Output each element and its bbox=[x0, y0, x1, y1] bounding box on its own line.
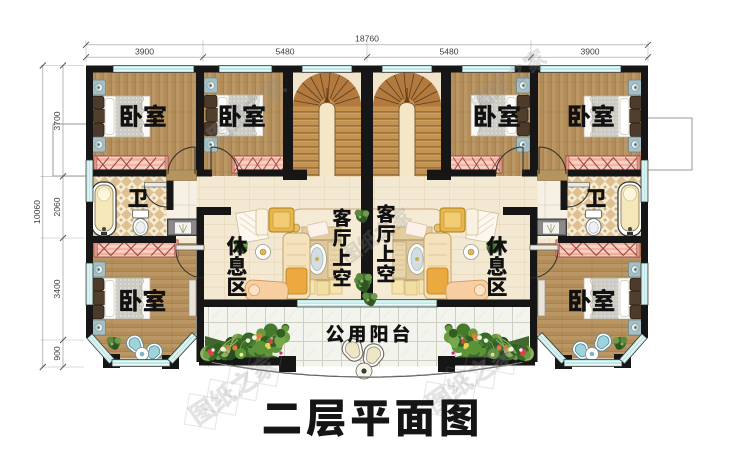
svg-text:900: 900 bbox=[52, 346, 62, 361]
svg-text:3400: 3400 bbox=[52, 279, 62, 298]
svg-text:18760: 18760 bbox=[355, 34, 379, 44]
svg-text:2060: 2060 bbox=[52, 197, 62, 216]
svg-text:3900: 3900 bbox=[135, 47, 154, 57]
svg-text:5480: 5480 bbox=[275, 47, 294, 57]
svg-text:3900: 3900 bbox=[580, 47, 599, 57]
svg-text:5480: 5480 bbox=[439, 47, 458, 57]
svg-text:3700: 3700 bbox=[52, 111, 62, 130]
svg-text:10060: 10060 bbox=[32, 200, 42, 224]
